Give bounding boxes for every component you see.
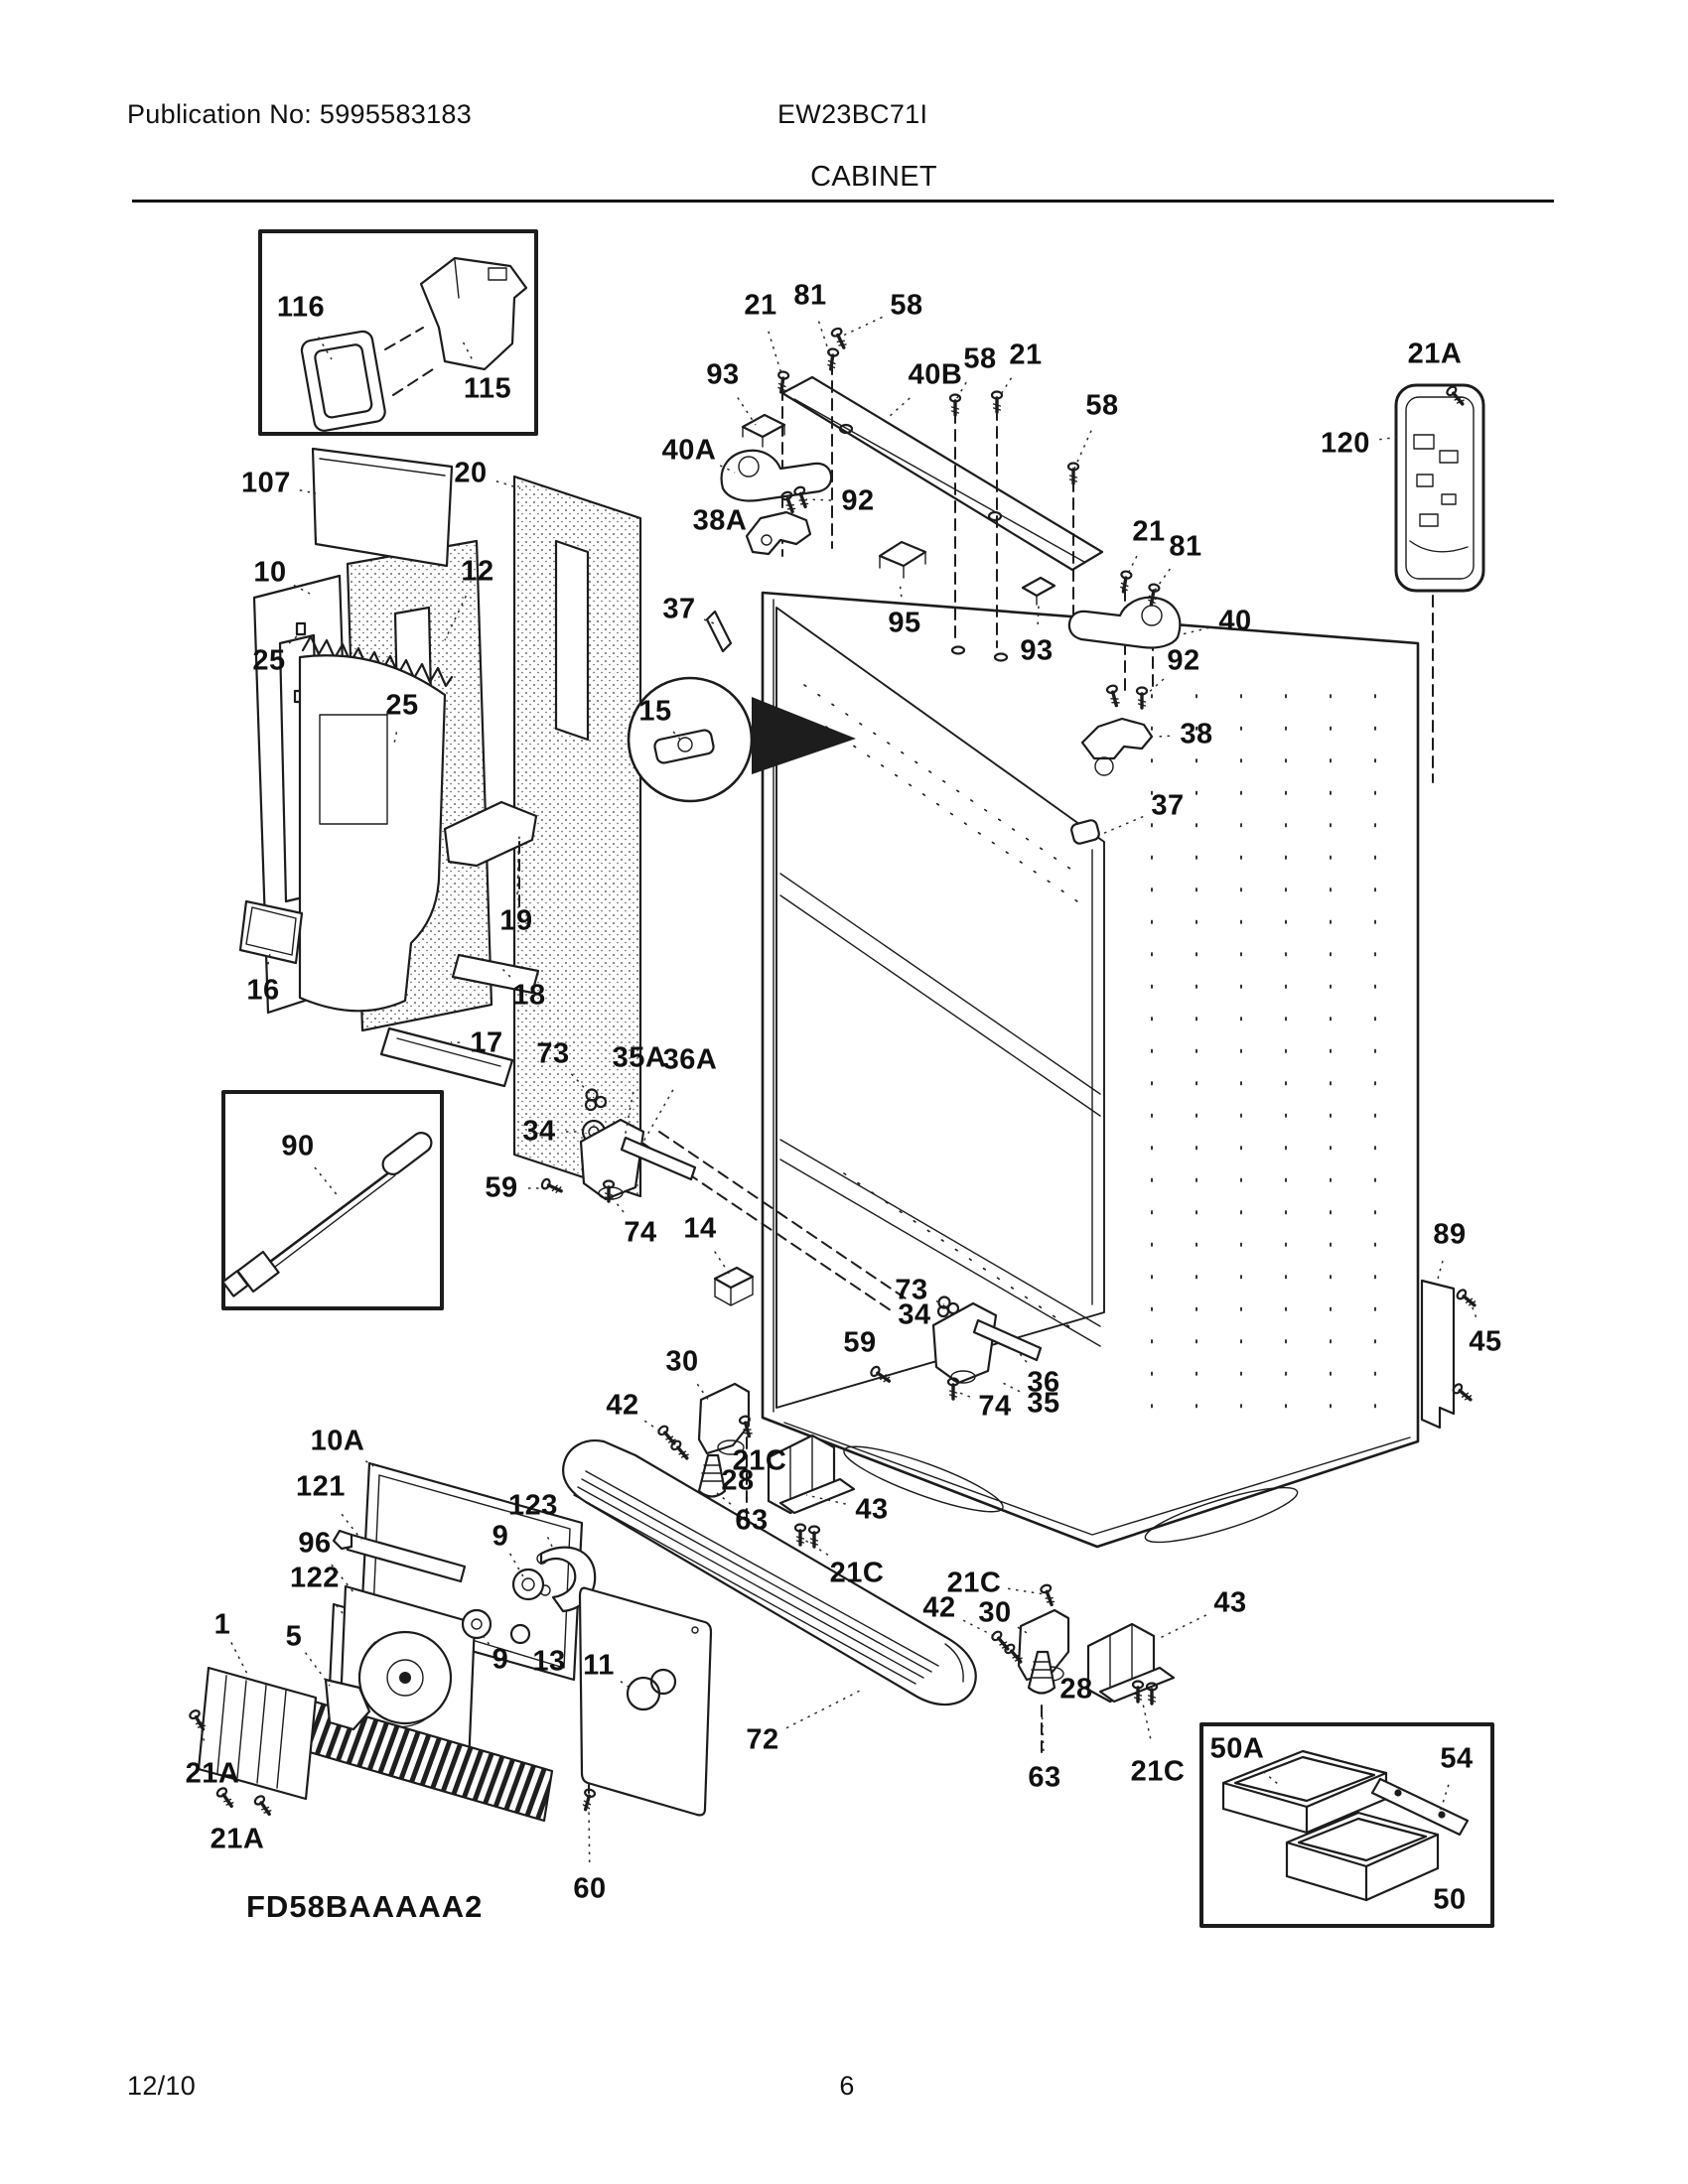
leader-line [720, 466, 735, 473]
callout-label: 107 [241, 468, 291, 500]
leader-line [1437, 1261, 1443, 1283]
leader-line [461, 338, 472, 358]
callout-label: 95 [888, 608, 920, 640]
callout-label: 63 [1028, 1762, 1060, 1795]
leader-line [697, 1384, 711, 1404]
callout-label: 43 [1213, 1587, 1246, 1620]
callout-label: 21C [1131, 1756, 1186, 1789]
leader-line [1018, 1627, 1029, 1634]
leader-line [715, 1252, 730, 1275]
leader-line [480, 1631, 490, 1644]
callout-label: 28 [721, 1465, 754, 1498]
leader-line [300, 490, 316, 493]
leader-line [643, 1090, 673, 1142]
leader-line [889, 398, 910, 417]
leader-line [998, 378, 1012, 399]
leader-line [1156, 736, 1170, 737]
callout-label: 20 [454, 458, 487, 490]
callout-label: 43 [855, 1494, 888, 1527]
callout-label: 120 [1321, 428, 1370, 461]
callout-label: 35 [1027, 1388, 1059, 1421]
callout-label: 115 [464, 373, 511, 406]
callout-label: 40 [1218, 606, 1251, 638]
callout-label: 14 [683, 1213, 716, 1246]
callout-label: 74 [978, 1391, 1011, 1424]
callout-label: 92 [1167, 645, 1199, 678]
callout-label: 21 [744, 290, 776, 323]
leader-line [612, 1197, 624, 1212]
leader-line [1263, 1771, 1279, 1785]
leader-line [1440, 1785, 1449, 1813]
callout-label: 81 [793, 280, 826, 313]
callout-label: 89 [1433, 1219, 1466, 1252]
leader-line [1160, 1615, 1206, 1638]
leader-line [900, 582, 902, 597]
callout-label: 15 [638, 696, 671, 729]
leader-line [342, 1514, 361, 1540]
footer-date: 12/10 [127, 2071, 196, 2102]
callout-label: 34 [522, 1116, 555, 1149]
callout-label: 28 [1059, 1674, 1092, 1706]
callout-label: 30 [665, 1346, 698, 1379]
leader-line [319, 338, 332, 359]
leader-line [1126, 556, 1137, 578]
callout-label: 122 [290, 1563, 340, 1595]
leader-line [1178, 627, 1209, 635]
leader-line [517, 836, 519, 894]
callout-label: 116 [277, 292, 325, 325]
callout-label: 38 [1180, 719, 1212, 751]
leader-line [268, 953, 270, 964]
callout-label: 17 [470, 1027, 502, 1060]
leader-line [1146, 679, 1164, 695]
callout-label: 72 [746, 1724, 778, 1757]
leader-line [819, 322, 830, 355]
callout-label: 81 [1169, 531, 1201, 564]
callout-label: 59 [843, 1327, 876, 1360]
callout-label: 93 [706, 359, 739, 392]
leader-line [806, 499, 831, 500]
callout-label: 10 [253, 557, 286, 590]
leader-line [231, 1642, 248, 1676]
leader-line [201, 1727, 204, 1741]
callout-label: 10A [311, 1426, 365, 1458]
leader-line [502, 969, 510, 977]
callout-label: 21C [830, 1558, 885, 1590]
callout-label: 30 [978, 1597, 1011, 1630]
leader-line [548, 1537, 554, 1551]
callout-label: 54 [1440, 1743, 1473, 1776]
leader-line [1008, 1588, 1045, 1594]
leader-line [1154, 569, 1170, 592]
callout-label: 13 [532, 1646, 565, 1679]
callout-label: 18 [512, 980, 545, 1013]
leader-line [289, 635, 298, 643]
callout-label: 42 [606, 1390, 638, 1423]
callout-label: 9 [492, 1521, 509, 1554]
callout-label: 21A [1408, 339, 1463, 371]
callout-label: 21A [211, 1824, 265, 1856]
leader-line [315, 1167, 340, 1198]
callout-label: 60 [573, 1873, 606, 1906]
callout-label: 96 [298, 1528, 331, 1561]
leader-lines-layer [0, 0, 1688, 2184]
callout-label: 37 [1151, 790, 1184, 823]
callout-label: 37 [662, 594, 695, 626]
callout-label: 63 [735, 1505, 768, 1538]
leader-line [1074, 431, 1091, 469]
callout-label: 59 [485, 1172, 517, 1205]
leader-line [306, 1653, 330, 1686]
leader-line [1042, 1704, 1044, 1751]
callout-label: 40B [909, 359, 963, 392]
leader-line [957, 1392, 970, 1397]
callout-label: 34 [898, 1299, 930, 1332]
callout-label: 5 [286, 1621, 303, 1654]
leader-line [1379, 437, 1400, 440]
callout-label: 93 [1020, 635, 1053, 668]
callout-label: 45 [1469, 1326, 1501, 1359]
leader-line [1471, 1302, 1477, 1317]
footer-page-number: 6 [839, 2071, 854, 2102]
leader-line [644, 1421, 663, 1433]
callout-label: 21 [1132, 516, 1165, 549]
diagram-code-label: FD58BAAAAA2 [246, 1889, 483, 1925]
leader-line [1102, 817, 1143, 834]
leader-line [843, 317, 883, 336]
callout-label: 38A [693, 505, 748, 538]
leader-line [786, 1690, 862, 1728]
leader-line [365, 1461, 373, 1466]
callout-label: 50A [1210, 1733, 1265, 1766]
document-page: Publication No: 5995583183 EW23BC71I CAB… [0, 0, 1688, 2184]
callout-label: 58 [1085, 390, 1118, 423]
leader-line [445, 596, 466, 640]
leader-line [294, 586, 310, 594]
callout-label: 50 [1433, 1884, 1466, 1917]
callout-label: 25 [252, 645, 285, 678]
leader-line [589, 1807, 590, 1862]
leader-line [394, 732, 396, 744]
callout-label: 16 [246, 975, 279, 1008]
callout-label: 74 [624, 1217, 656, 1250]
callout-label: 11 [583, 1650, 615, 1683]
callout-label: 121 [296, 1471, 346, 1504]
callout-label: 40A [662, 435, 717, 468]
callout-label: 42 [922, 1592, 955, 1625]
callout-label: 21 [1009, 340, 1042, 372]
leader-line [1038, 606, 1039, 624]
callout-label: 123 [508, 1490, 558, 1523]
callout-label: 1 [214, 1609, 231, 1642]
leader-line [936, 1301, 944, 1304]
callout-label: 92 [841, 485, 874, 518]
leader-line [806, 1495, 846, 1504]
leader-line [621, 1682, 630, 1688]
callout-label: 9 [492, 1644, 509, 1677]
callout-label: 19 [499, 905, 532, 938]
callout-label: 58 [890, 290, 922, 323]
leader-line [738, 398, 756, 425]
callout-label: 12 [461, 556, 493, 589]
leader-line [510, 1554, 524, 1578]
leader-line [571, 1074, 594, 1098]
callout-label: 36A [663, 1044, 718, 1077]
leader-line [769, 332, 782, 377]
callout-label: 21A [186, 1758, 240, 1791]
callout-label: 35A [613, 1042, 667, 1075]
callout-label: 73 [536, 1038, 569, 1071]
callout-label: 90 [281, 1131, 314, 1163]
leader-line [624, 1092, 633, 1144]
leader-line [337, 1605, 343, 1613]
leader-line [1143, 1704, 1151, 1738]
leader-line [1017, 1350, 1027, 1362]
leader-line [496, 481, 520, 488]
leader-line [804, 1540, 828, 1555]
callout-label: 25 [385, 690, 418, 723]
leader-line [704, 619, 719, 625]
callout-label: 58 [963, 343, 996, 376]
leader-line [673, 732, 683, 743]
